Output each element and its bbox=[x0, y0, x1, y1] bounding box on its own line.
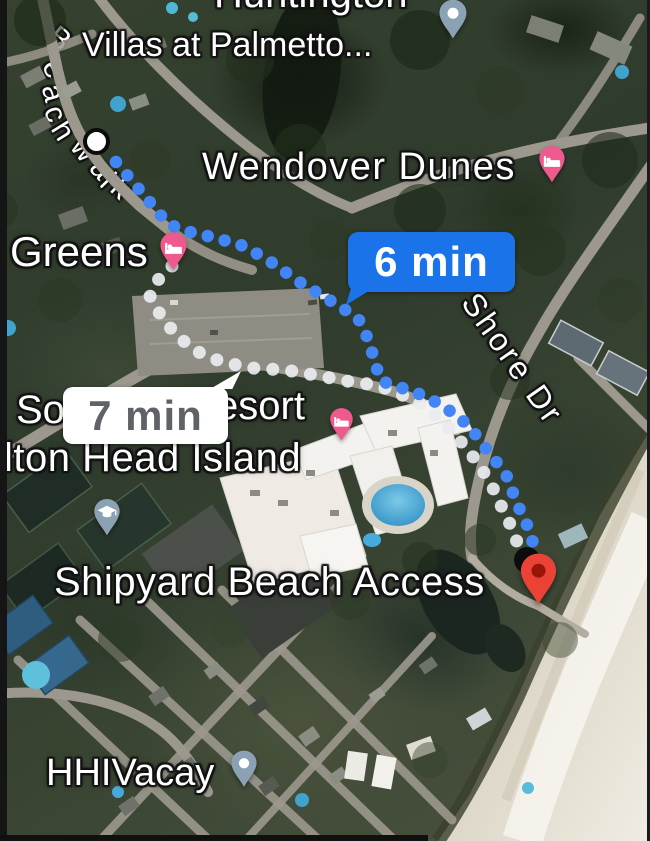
alternate-route-eta-bubble[interactable]: 7 min bbox=[63, 387, 228, 444]
primary-eta-text: 6 min bbox=[374, 238, 489, 286]
hhivacay-poi-pin-icon[interactable] bbox=[230, 748, 258, 791]
label-hhivacay[interactable]: HHIVacay bbox=[46, 752, 214, 795]
wendover-lodging-pin-icon[interactable] bbox=[538, 144, 566, 186]
screen-edge-bottom bbox=[0, 835, 428, 841]
label-villas-at-palmetto[interactable]: Villas at Palmetto... bbox=[82, 26, 372, 65]
primary-route-eta-bubble[interactable]: 6 min bbox=[348, 232, 515, 292]
greens-lodging-pin-icon[interactable] bbox=[159, 230, 188, 274]
route-origin-icon[interactable] bbox=[83, 128, 110, 155]
screen-edge-left bbox=[0, 0, 7, 841]
school-pin-icon[interactable] bbox=[92, 498, 122, 538]
huntington-poi-pin-icon[interactable] bbox=[438, 0, 468, 42]
label-huntington[interactable]: Huntington bbox=[214, 0, 407, 17]
label-shipyard-beach-access[interactable]: Shipyard Beach Access bbox=[54, 560, 485, 605]
label-sonesta-right-fragment[interactable]: esort bbox=[216, 384, 305, 429]
maps-satellite-view[interactable]: Huntington Villas at Palmetto... Wendove… bbox=[0, 0, 650, 841]
label-greens[interactable]: Greens bbox=[10, 228, 148, 276]
label-wendover-dunes[interactable]: Wendover Dunes bbox=[202, 146, 516, 189]
alternate-eta-text: 7 min bbox=[88, 392, 203, 440]
resort-lodging-pin-icon[interactable] bbox=[329, 406, 354, 444]
destination-pin-icon[interactable] bbox=[519, 551, 558, 609]
label-sonesta-left-fragment[interactable]: So bbox=[16, 388, 65, 433]
